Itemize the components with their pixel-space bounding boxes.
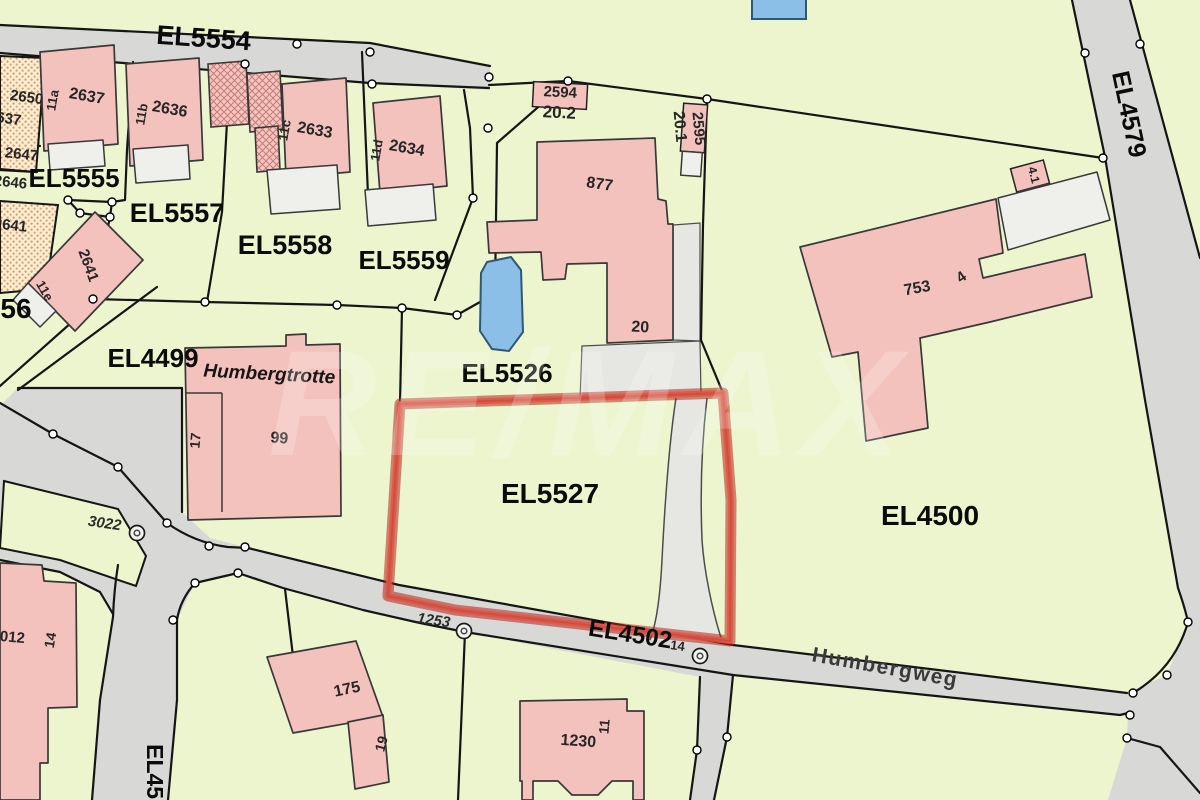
label-n2637-edge: 2637: [0, 108, 22, 129]
boundary-node: [114, 463, 122, 471]
boundary-node: [64, 196, 72, 204]
label-el5559: EL5559: [358, 245, 449, 275]
label-el5558: EL5558: [238, 230, 333, 260]
hatched-zone-pink-1: [208, 61, 249, 127]
boundary-node: [234, 569, 242, 577]
boundary-node: [723, 733, 731, 741]
boundary-node: [368, 80, 376, 88]
boundary-node: [76, 209, 84, 217]
boundary-node: [89, 295, 97, 303]
boundary-node: [1123, 734, 1131, 742]
label-el5556-partial: 56: [0, 293, 31, 324]
boundary-node: [1129, 689, 1137, 697]
boundary-node: [1184, 618, 1192, 626]
label-n2594: 2594: [543, 83, 578, 102]
boundary-node: [106, 213, 114, 221]
boundary-node: [366, 48, 374, 56]
building-2633-annex: [267, 165, 340, 214]
boundary-node: [241, 543, 249, 551]
survey-point-marker: [457, 624, 472, 639]
label-el5557: EL5557: [130, 198, 225, 228]
label-n2595: 2595: [689, 111, 709, 146]
boundary-node: [333, 301, 341, 309]
survey-point-marker: [130, 526, 145, 541]
label-n14-road: 14: [669, 637, 686, 654]
boundary-node: [241, 60, 249, 68]
boundary-node: [49, 430, 57, 438]
boundary-node: [484, 124, 492, 132]
label-el45-vertical: EL450: [142, 744, 168, 800]
boundary-node: [1163, 671, 1171, 679]
label-el5555: EL5555: [28, 163, 119, 193]
boundary-node: [169, 616, 177, 624]
boundary-node: [205, 542, 213, 550]
label-n17: 17: [186, 432, 203, 449]
label-el4500: EL4500: [881, 500, 979, 531]
label-n20-2: 20.2: [542, 102, 576, 123]
building-2634-annex: [365, 184, 436, 226]
label-el4499: EL4499: [107, 343, 198, 373]
boundary-node: [163, 519, 171, 527]
label-n14-bldg: 14: [41, 631, 59, 649]
label-n2646: 2646: [0, 172, 28, 192]
boundary-node: [703, 95, 711, 103]
label-n20-1: 20.1: [670, 110, 690, 143]
boundary-node: [1099, 154, 1107, 162]
boundary-node: [469, 194, 477, 202]
boundary-node: [453, 311, 461, 319]
boundary-node: [693, 746, 701, 754]
watermark: RE/MAX: [268, 319, 911, 487]
building-2636-annex: [133, 145, 190, 183]
boundary-node: [485, 73, 493, 81]
label-n012: 012: [0, 628, 26, 647]
boundary-node: [191, 579, 199, 587]
label-n11-bldg: 11: [595, 718, 612, 734]
boundary-node: [398, 304, 406, 312]
label-n1230: 1230: [560, 732, 597, 751]
label-n2647: 2647: [4, 144, 39, 164]
boundary-node: [1081, 49, 1089, 57]
boundary-node: [201, 298, 209, 306]
boundary-node: [108, 198, 116, 206]
pool-top: [752, 0, 806, 19]
boundary-node: [293, 40, 301, 48]
cadastral-map-page: EL5554EL555556EL5557EL5558EL5559EL5526EL…: [0, 0, 1200, 800]
boundary-node: [1136, 40, 1144, 48]
label-box-2595-annex: [681, 151, 703, 176]
boundary-node: [1126, 711, 1134, 719]
label-n2641-edge: 2641: [0, 215, 28, 235]
survey-point-marker: [693, 649, 708, 664]
cadastral-map: EL5554EL555556EL5557EL5558EL5559EL5526EL…: [0, 0, 1200, 800]
